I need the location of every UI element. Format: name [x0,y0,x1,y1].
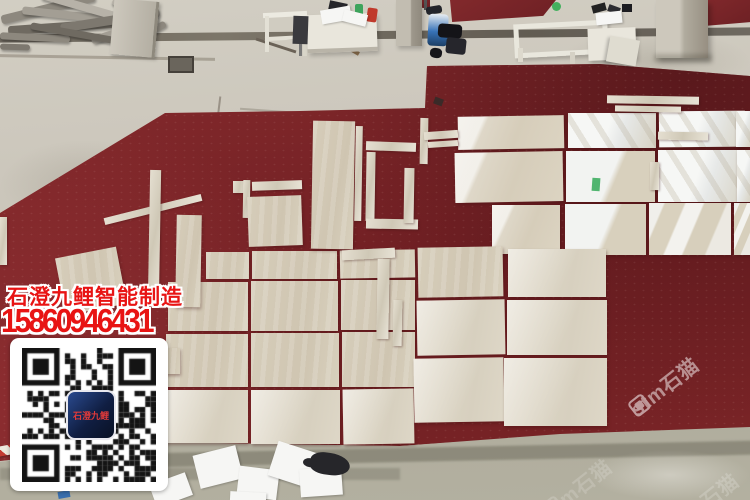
qr-code-panel: 石澄九鲤 [10,338,168,491]
pillar-shadow [654,54,712,62]
paper-sheet [193,445,244,489]
cabinet-door-open [606,36,640,67]
photo-canvas: 石澄九鲤 石澄九鲤智能制造 15860946431 stm石猫 stm石猫 st… [0,0,750,500]
green-tape [592,178,601,192]
scooter-rear-box [445,37,467,55]
table-leg [518,48,523,62]
leaning-board [110,0,160,58]
worktable-left [263,4,381,60]
black-tool [622,4,632,12]
paper-sheet [595,11,622,26]
scooter-wheel [429,47,442,59]
drill-bit [299,44,302,56]
phone-watermark: 15860946431 [1,303,152,341]
pillar-left [396,0,422,46]
pillar-right [656,0,708,58]
paper-sheet [230,491,267,500]
worktable-right [512,2,644,66]
table-leg [265,16,269,52]
qr-logo-text: 石澄九鲤 [73,409,109,422]
drain-cover [168,56,194,73]
metal-pipe [0,43,30,50]
table-leg [570,52,575,64]
green-bottle [552,2,561,11]
drill-tool [293,16,309,45]
qr-logo: 石澄九鲤 [66,390,116,440]
scooter [422,0,468,60]
